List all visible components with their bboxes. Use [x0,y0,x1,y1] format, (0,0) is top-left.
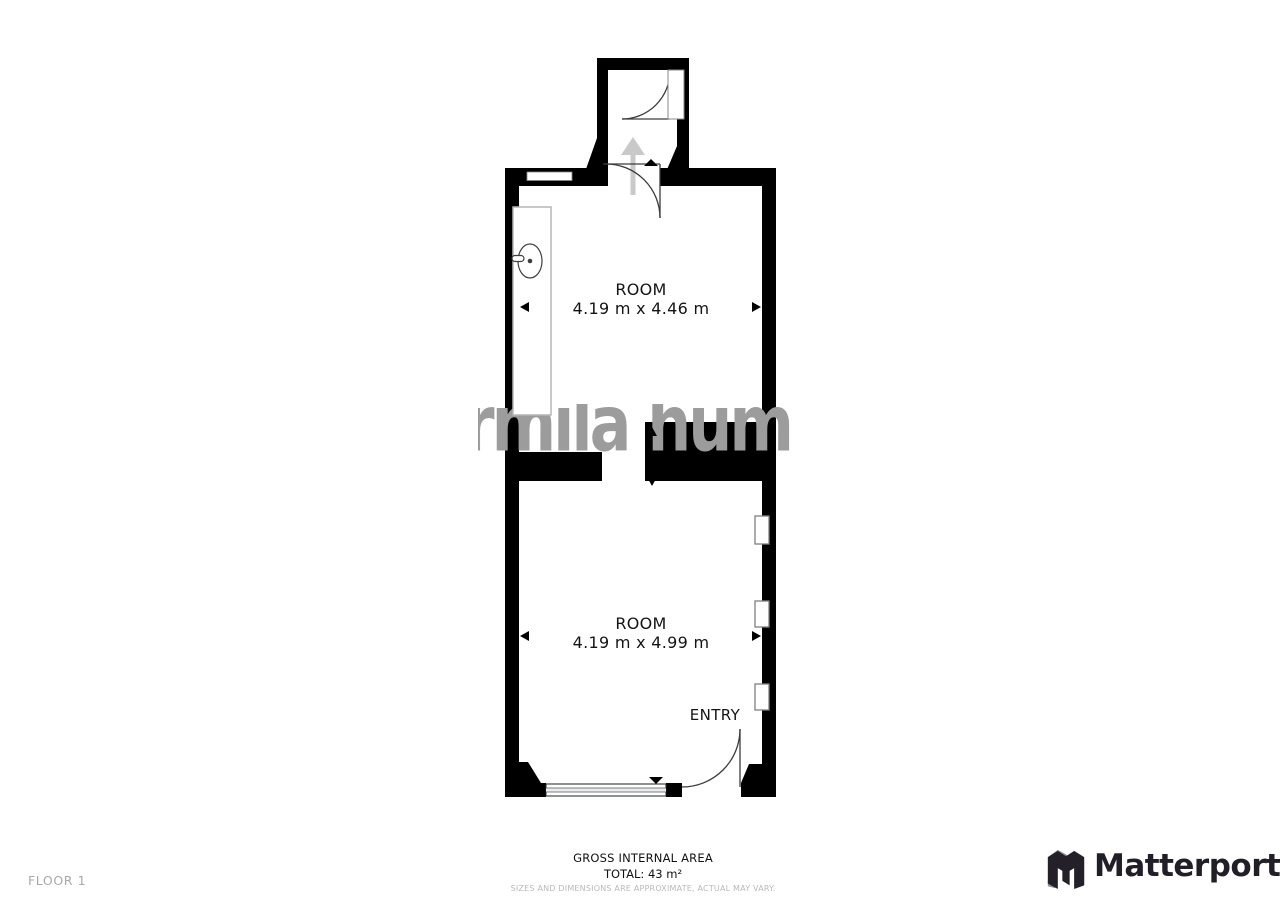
sink-drain-icon [528,259,533,264]
matterport-wordmark: Matterport [1094,848,1280,884]
floorplan-page: rmila hum [0,0,1280,905]
window-marker [649,777,663,784]
room-dimensions: 4.19 m x 4.99 m [505,634,777,653]
direction-arrow-icon [621,137,645,195]
total-area-value: TOTAL: 43 m² [443,867,843,881]
entry-door [682,729,740,787]
gross-internal-area-label: GROSS INTERNAL AREA [443,851,843,865]
matterport-logo: Matterport [1046,846,1276,894]
room-dimensions: 4.19 m x 4.46 m [505,300,777,319]
room-label-top: ROOM 4.19 m x 4.46 m [505,281,777,318]
footer-summary: GROSS INTERNAL AREA TOTAL: 43 m² SIZES A… [443,851,843,893]
disclaimer-text: SIZES AND DIMENSIONS ARE APPROXIMATE, AC… [443,884,843,893]
room-label-bottom: ROOM 4.19 m x 4.99 m [505,615,777,652]
radiator [755,516,769,544]
floor-label: FLOOR 1 [28,873,86,888]
room-name: ROOM [505,615,777,634]
vestibule-door [622,70,684,119]
entry-label: ENTRY [655,706,775,724]
room-name: ROOM [505,281,777,300]
bottom-window [546,784,666,796]
door-swing-marker [644,159,658,166]
matterport-m-icon [1046,848,1086,890]
floorplan-details-layer [0,0,1280,905]
divider-dimension-arrow [647,427,657,486]
top-wall-window [527,172,572,181]
door-leaf [668,70,684,119]
sink-faucet-icon [512,256,524,262]
